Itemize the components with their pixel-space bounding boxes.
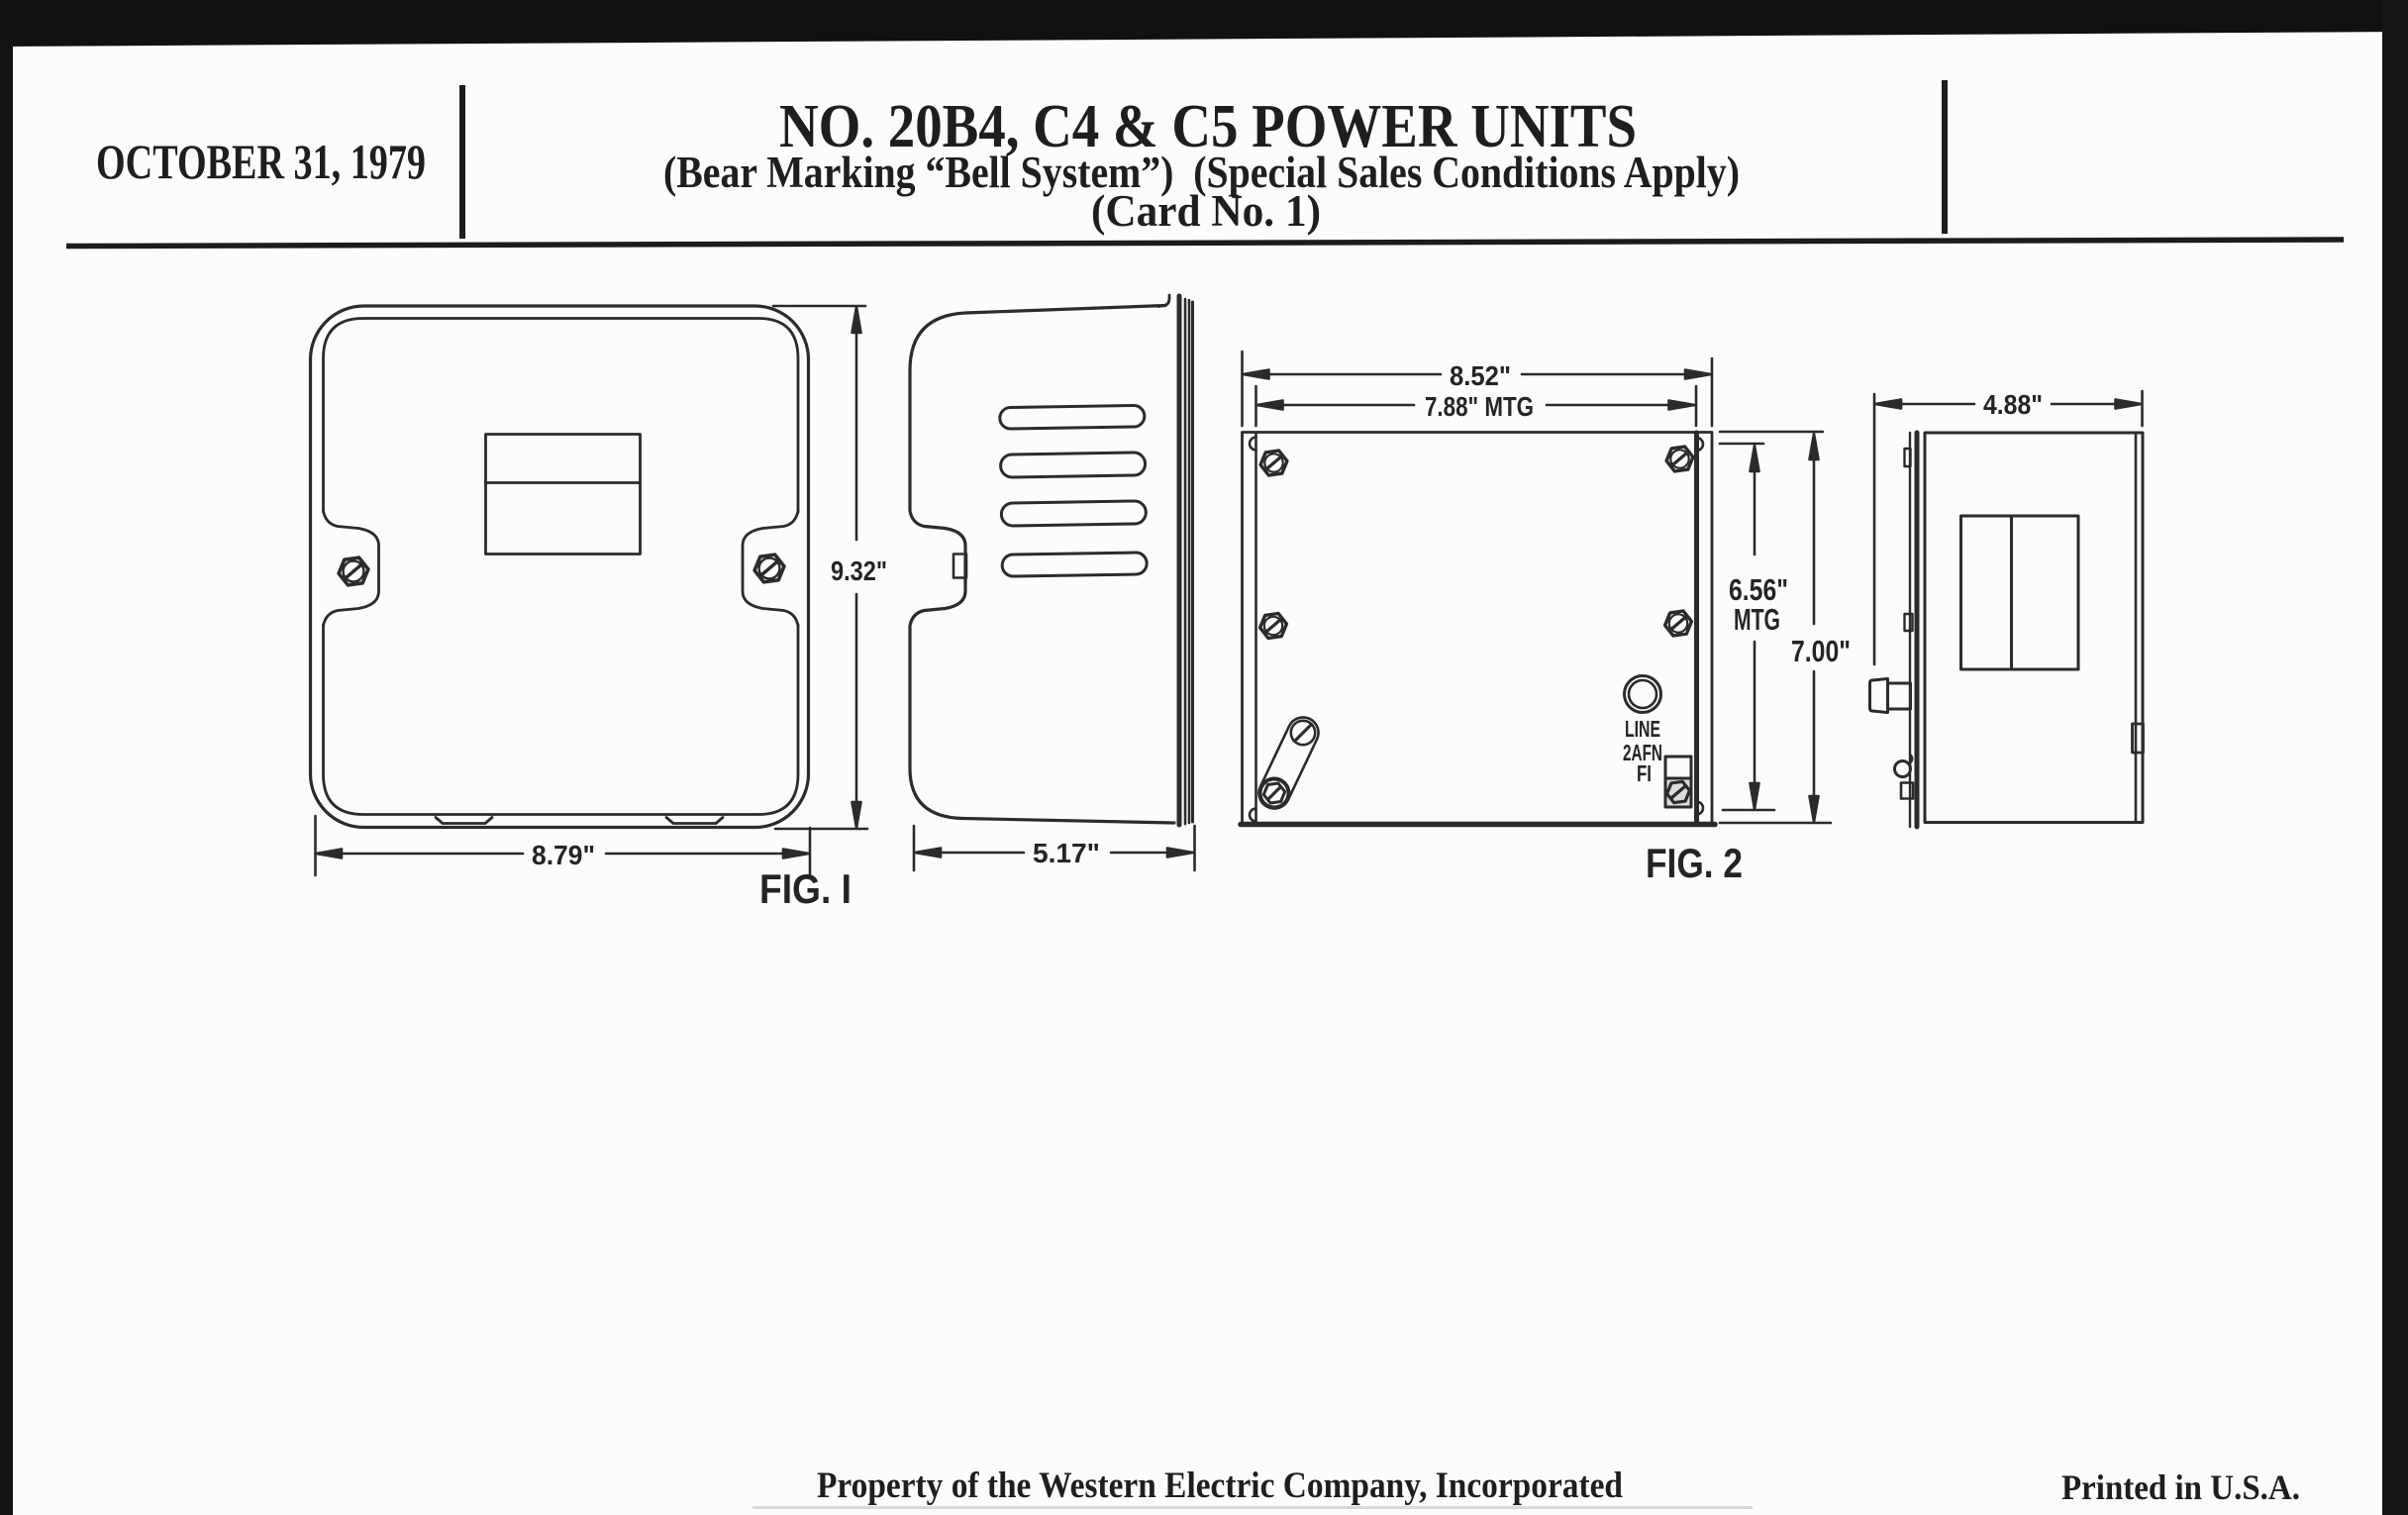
svg-text:8.52": 8.52" [1450, 360, 1511, 391]
svg-text:Property of the Western Electr: Property of the Western Electric Company… [817, 1465, 1623, 1506]
svg-text:8.79": 8.79" [532, 840, 595, 870]
svg-text:(Card No. 1): (Card No. 1) [1091, 186, 1321, 236]
svg-text:OCTOBER 31, 1979: OCTOBER 31, 1979 [96, 134, 426, 189]
svg-text:Printed in U.S.A.: Printed in U.S.A. [2061, 1467, 2300, 1507]
svg-text:LINE: LINE [1625, 716, 1660, 742]
svg-text:5.17": 5.17" [1033, 838, 1100, 868]
svg-text:4.88": 4.88" [1983, 389, 2043, 420]
svg-text:FIG. 2: FIG. 2 [1646, 840, 1743, 886]
svg-text:MTG: MTG [1734, 602, 1780, 637]
svg-text:FI: FI [1637, 760, 1652, 786]
svg-text:FIG. I: FIG. I [759, 865, 852, 912]
svg-text:7.00": 7.00" [1791, 634, 1851, 668]
svg-text:9.32": 9.32" [831, 555, 887, 586]
svg-text:7.88" MTG: 7.88" MTG [1425, 391, 1534, 422]
